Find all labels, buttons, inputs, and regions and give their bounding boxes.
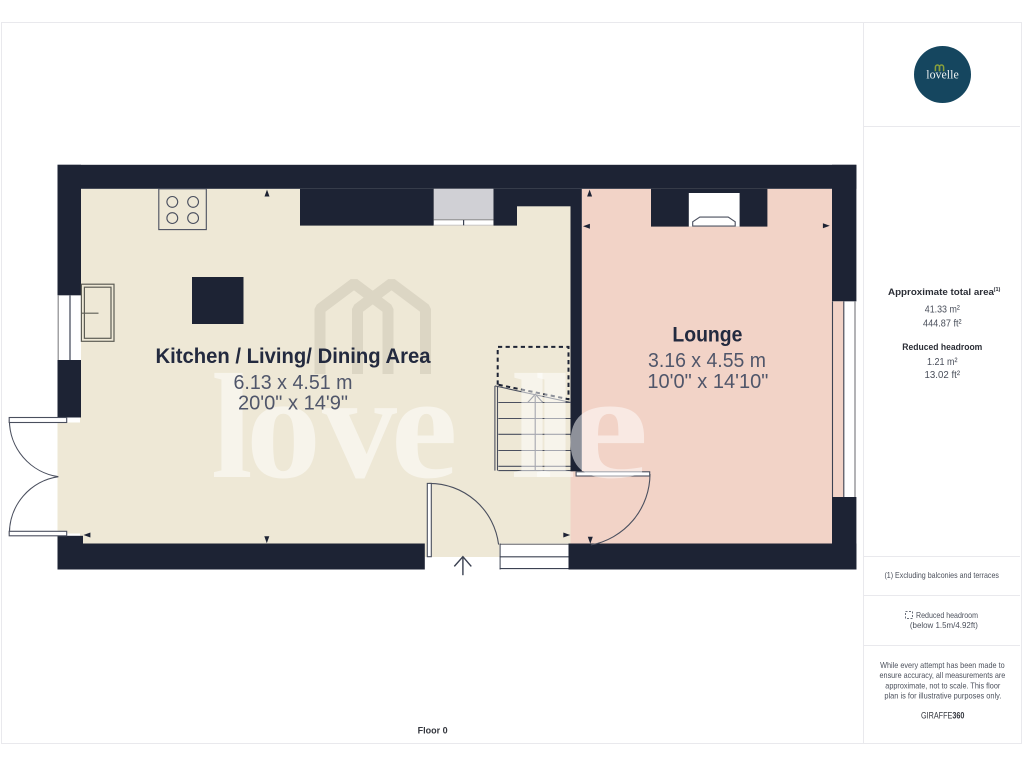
svg-text:plan is for illustrative purpo: plan is for illustrative purposes only. xyxy=(884,691,1001,701)
svg-text:13.02 ft²: 13.02 ft² xyxy=(925,370,961,381)
svg-text:10'0" x 14'10": 10'0" x 14'10" xyxy=(647,371,768,393)
svg-text:20'0" x 14'9": 20'0" x 14'9" xyxy=(238,393,348,415)
svg-text:(below 1.5m/4.92ft): (below 1.5m/4.92ft) xyxy=(910,620,978,630)
svg-text:(1) Excluding balconies and te: (1) Excluding balconies and terraces xyxy=(884,570,999,580)
svg-text:41.33 m²: 41.33 m² xyxy=(925,305,961,316)
svg-text:GIRAFFE360: GIRAFFE360 xyxy=(921,711,965,722)
svg-text:Reduced headroom: Reduced headroom xyxy=(916,610,978,620)
svg-text:While every attempt has been m: While every attempt has been made to xyxy=(880,660,1005,670)
svg-text:1.21 m²: 1.21 m² xyxy=(927,357,958,368)
svg-text:Approximate total area: Approximate total area xyxy=(888,287,995,298)
svg-text:ensure accuracy, all measureme: ensure accuracy, all measurements are xyxy=(880,670,1006,680)
svg-text:Kitchen / Living/ Dining Area: Kitchen / Living/ Dining Area xyxy=(156,344,432,368)
svg-text:444.87 ft²: 444.87 ft² xyxy=(923,319,962,330)
svg-text:Reduced headroom: Reduced headroom xyxy=(902,342,982,352)
svg-text:Floor 0: Floor 0 xyxy=(418,726,448,737)
svg-text:(1): (1) xyxy=(994,287,1001,293)
svg-text:6.13 x 4.51 m: 6.13 x 4.51 m xyxy=(234,372,353,394)
svg-text:Lounge: Lounge xyxy=(672,323,742,347)
svg-text:3.16 x 4.55 m: 3.16 x 4.55 m xyxy=(648,350,766,372)
svg-text:approximate, not to scale. Thi: approximate, not to scale. This floor xyxy=(885,680,1000,690)
svg-text:lovelle: lovelle xyxy=(211,344,649,510)
